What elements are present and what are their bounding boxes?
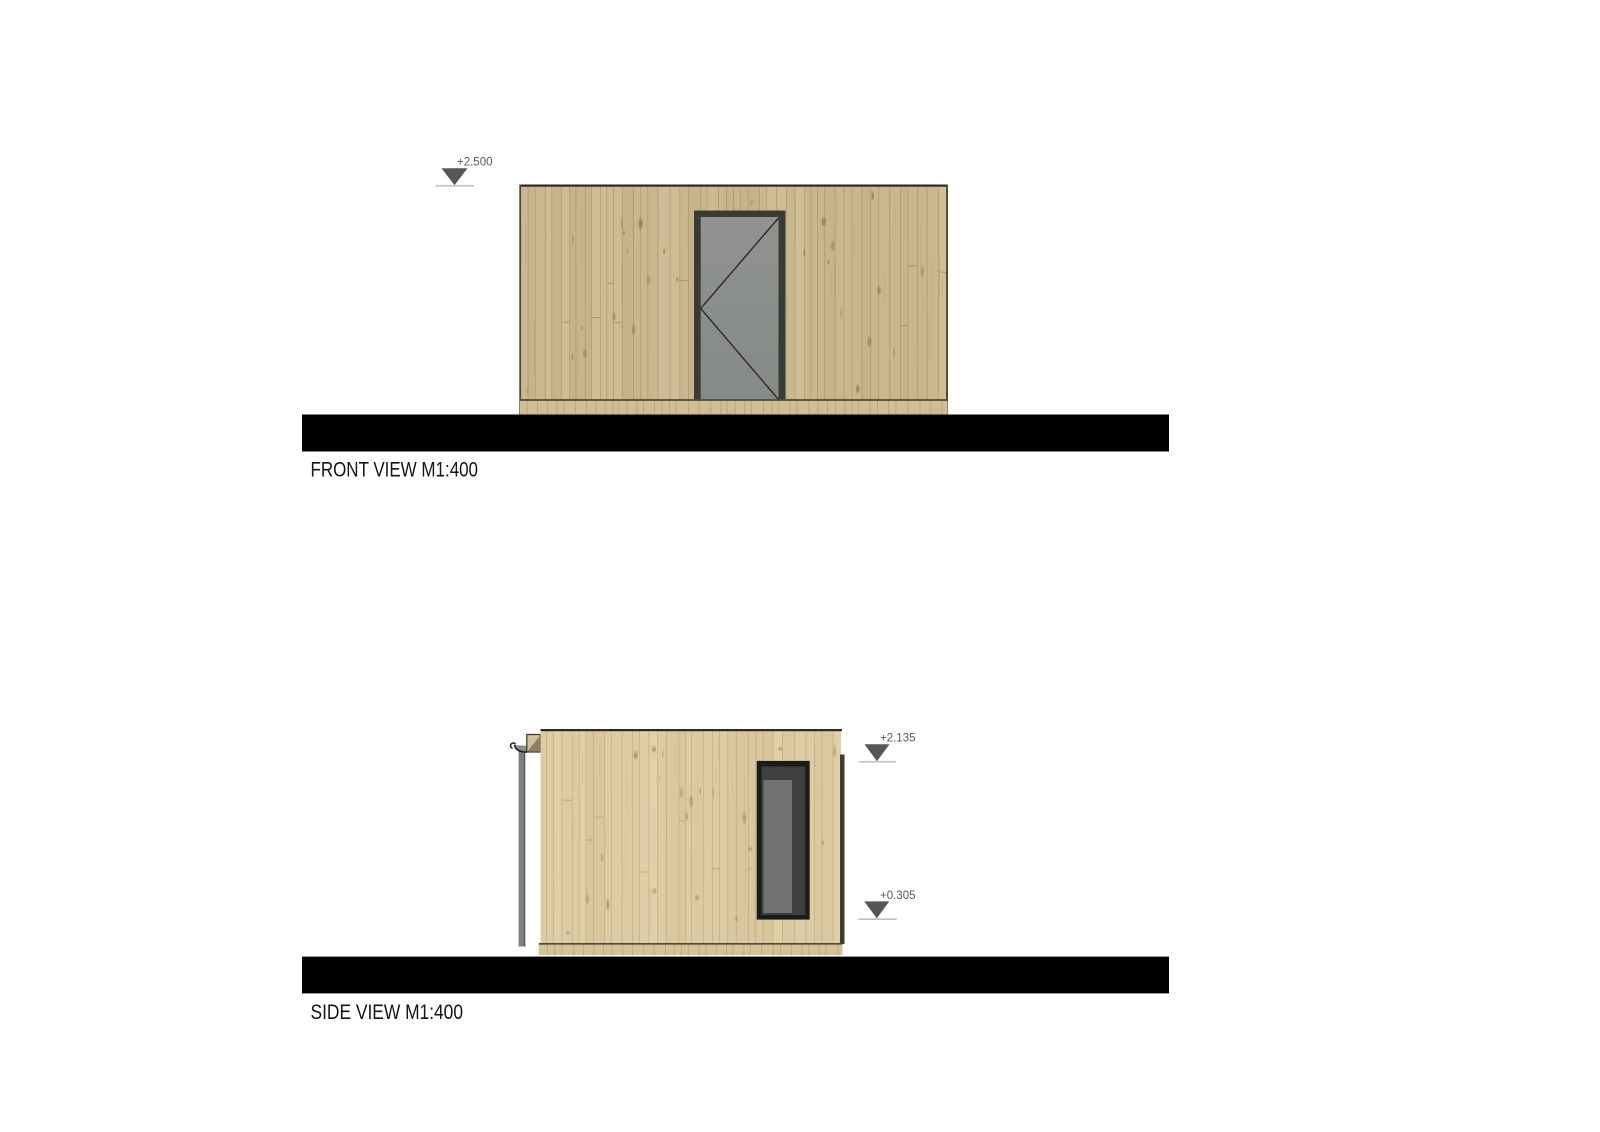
- svg-text:FRONT VIEW M1:400: FRONT VIEW M1:400: [311, 459, 479, 482]
- svg-text:SIDE VIEW M1:400: SIDE VIEW M1:400: [311, 1001, 464, 1024]
- svg-text:+0.305: +0.305: [880, 890, 916, 902]
- svg-text:+2.500: +2.500: [457, 157, 493, 169]
- svg-text:+2.135: +2.135: [880, 732, 916, 744]
